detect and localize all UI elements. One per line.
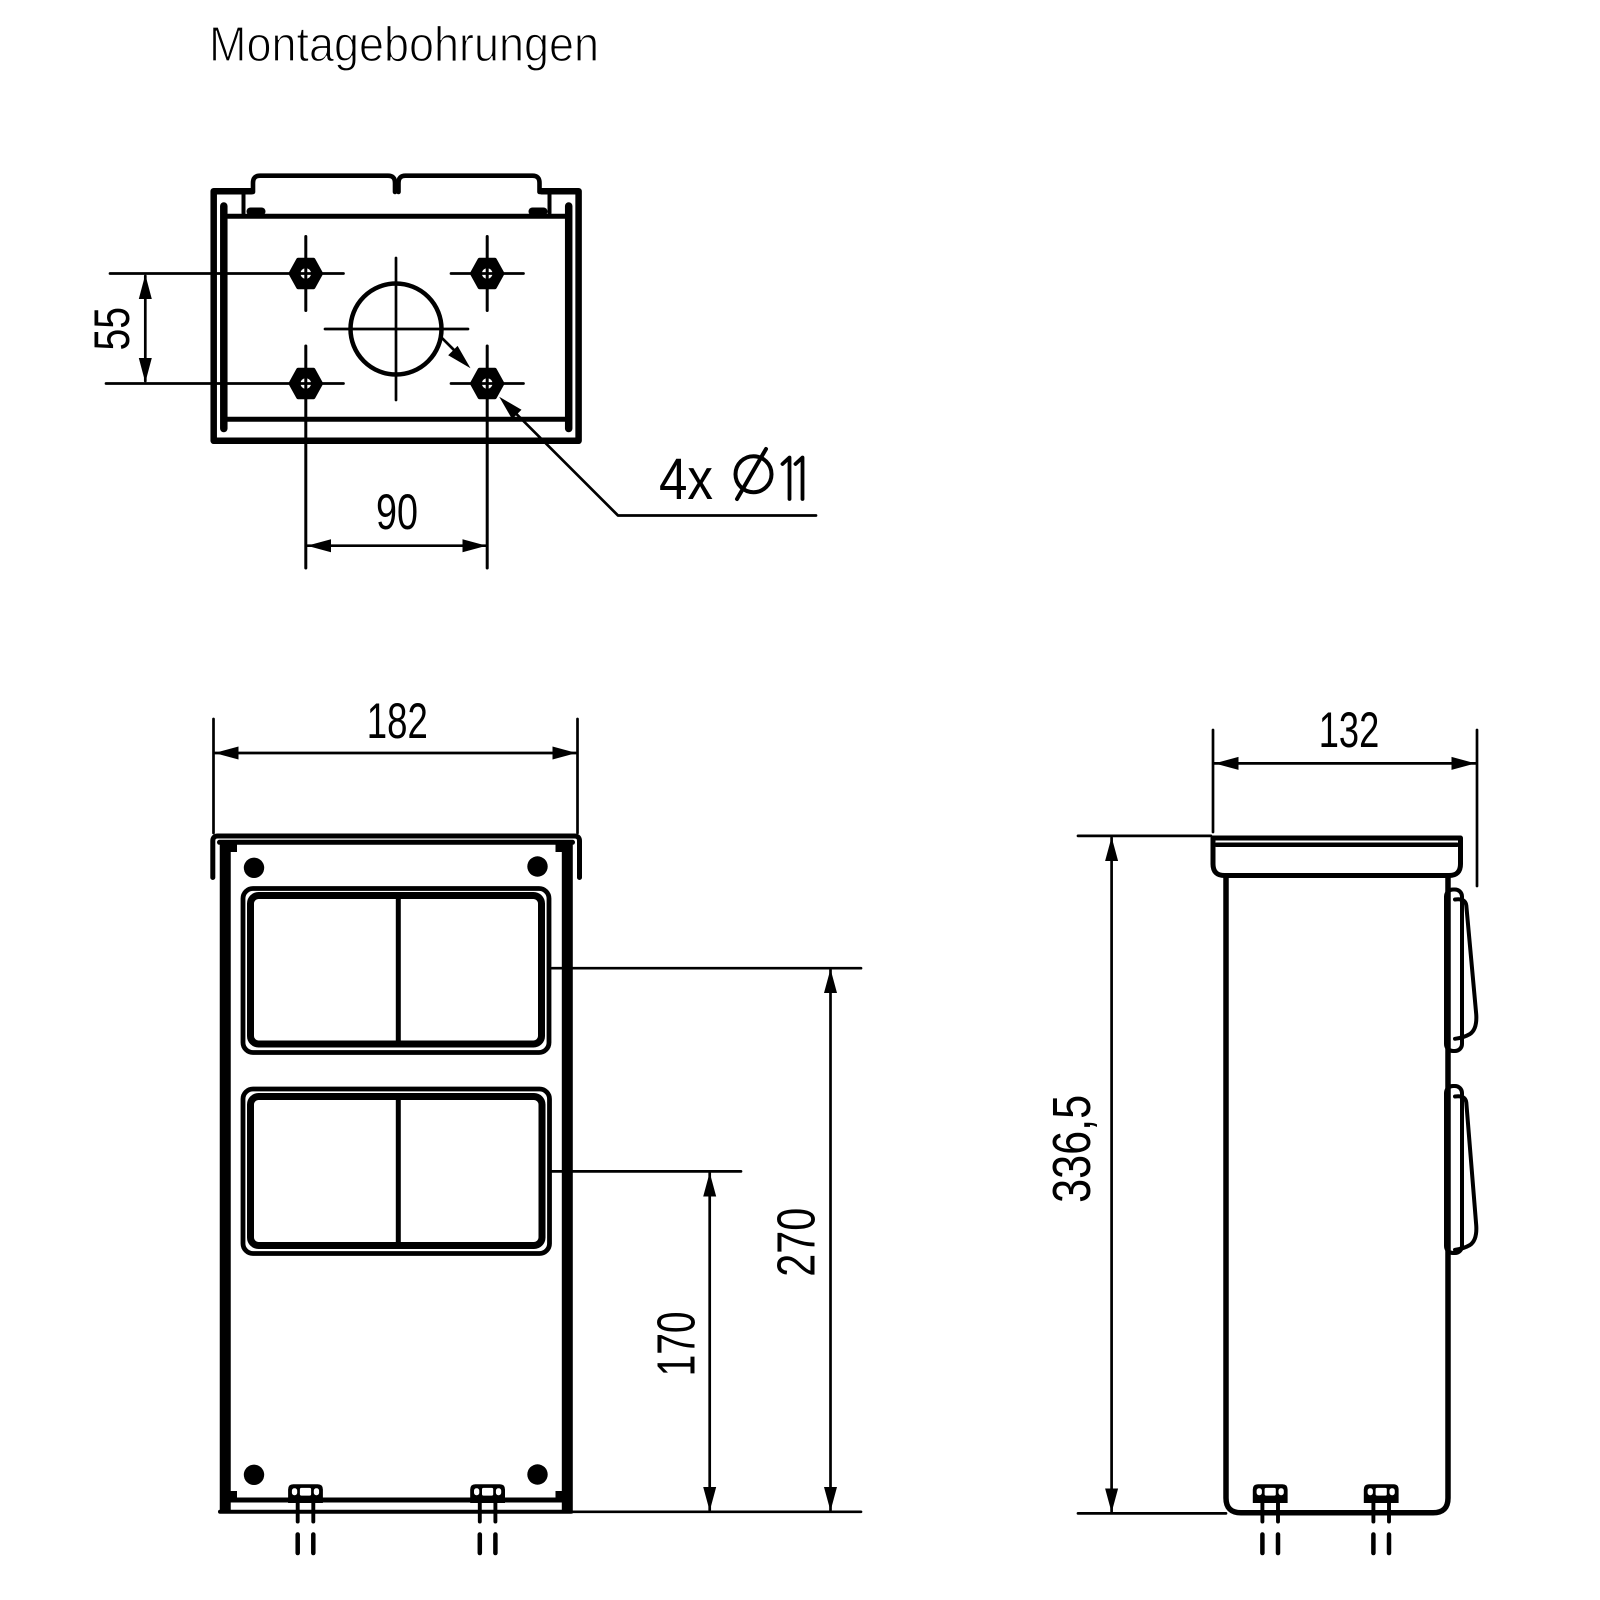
svg-text:336,5: 336,5 [1042,1095,1102,1203]
svg-text:55: 55 [84,307,140,351]
svg-text:4x: 4x [659,447,713,512]
svg-text:170: 170 [647,1311,707,1376]
svg-text:182: 182 [367,693,428,749]
svg-text:90: 90 [376,484,418,540]
svg-text:270: 270 [767,1208,827,1277]
svg-text:132: 132 [1319,702,1380,758]
svg-text:Montagebohrungen: Montagebohrungen [209,17,599,72]
